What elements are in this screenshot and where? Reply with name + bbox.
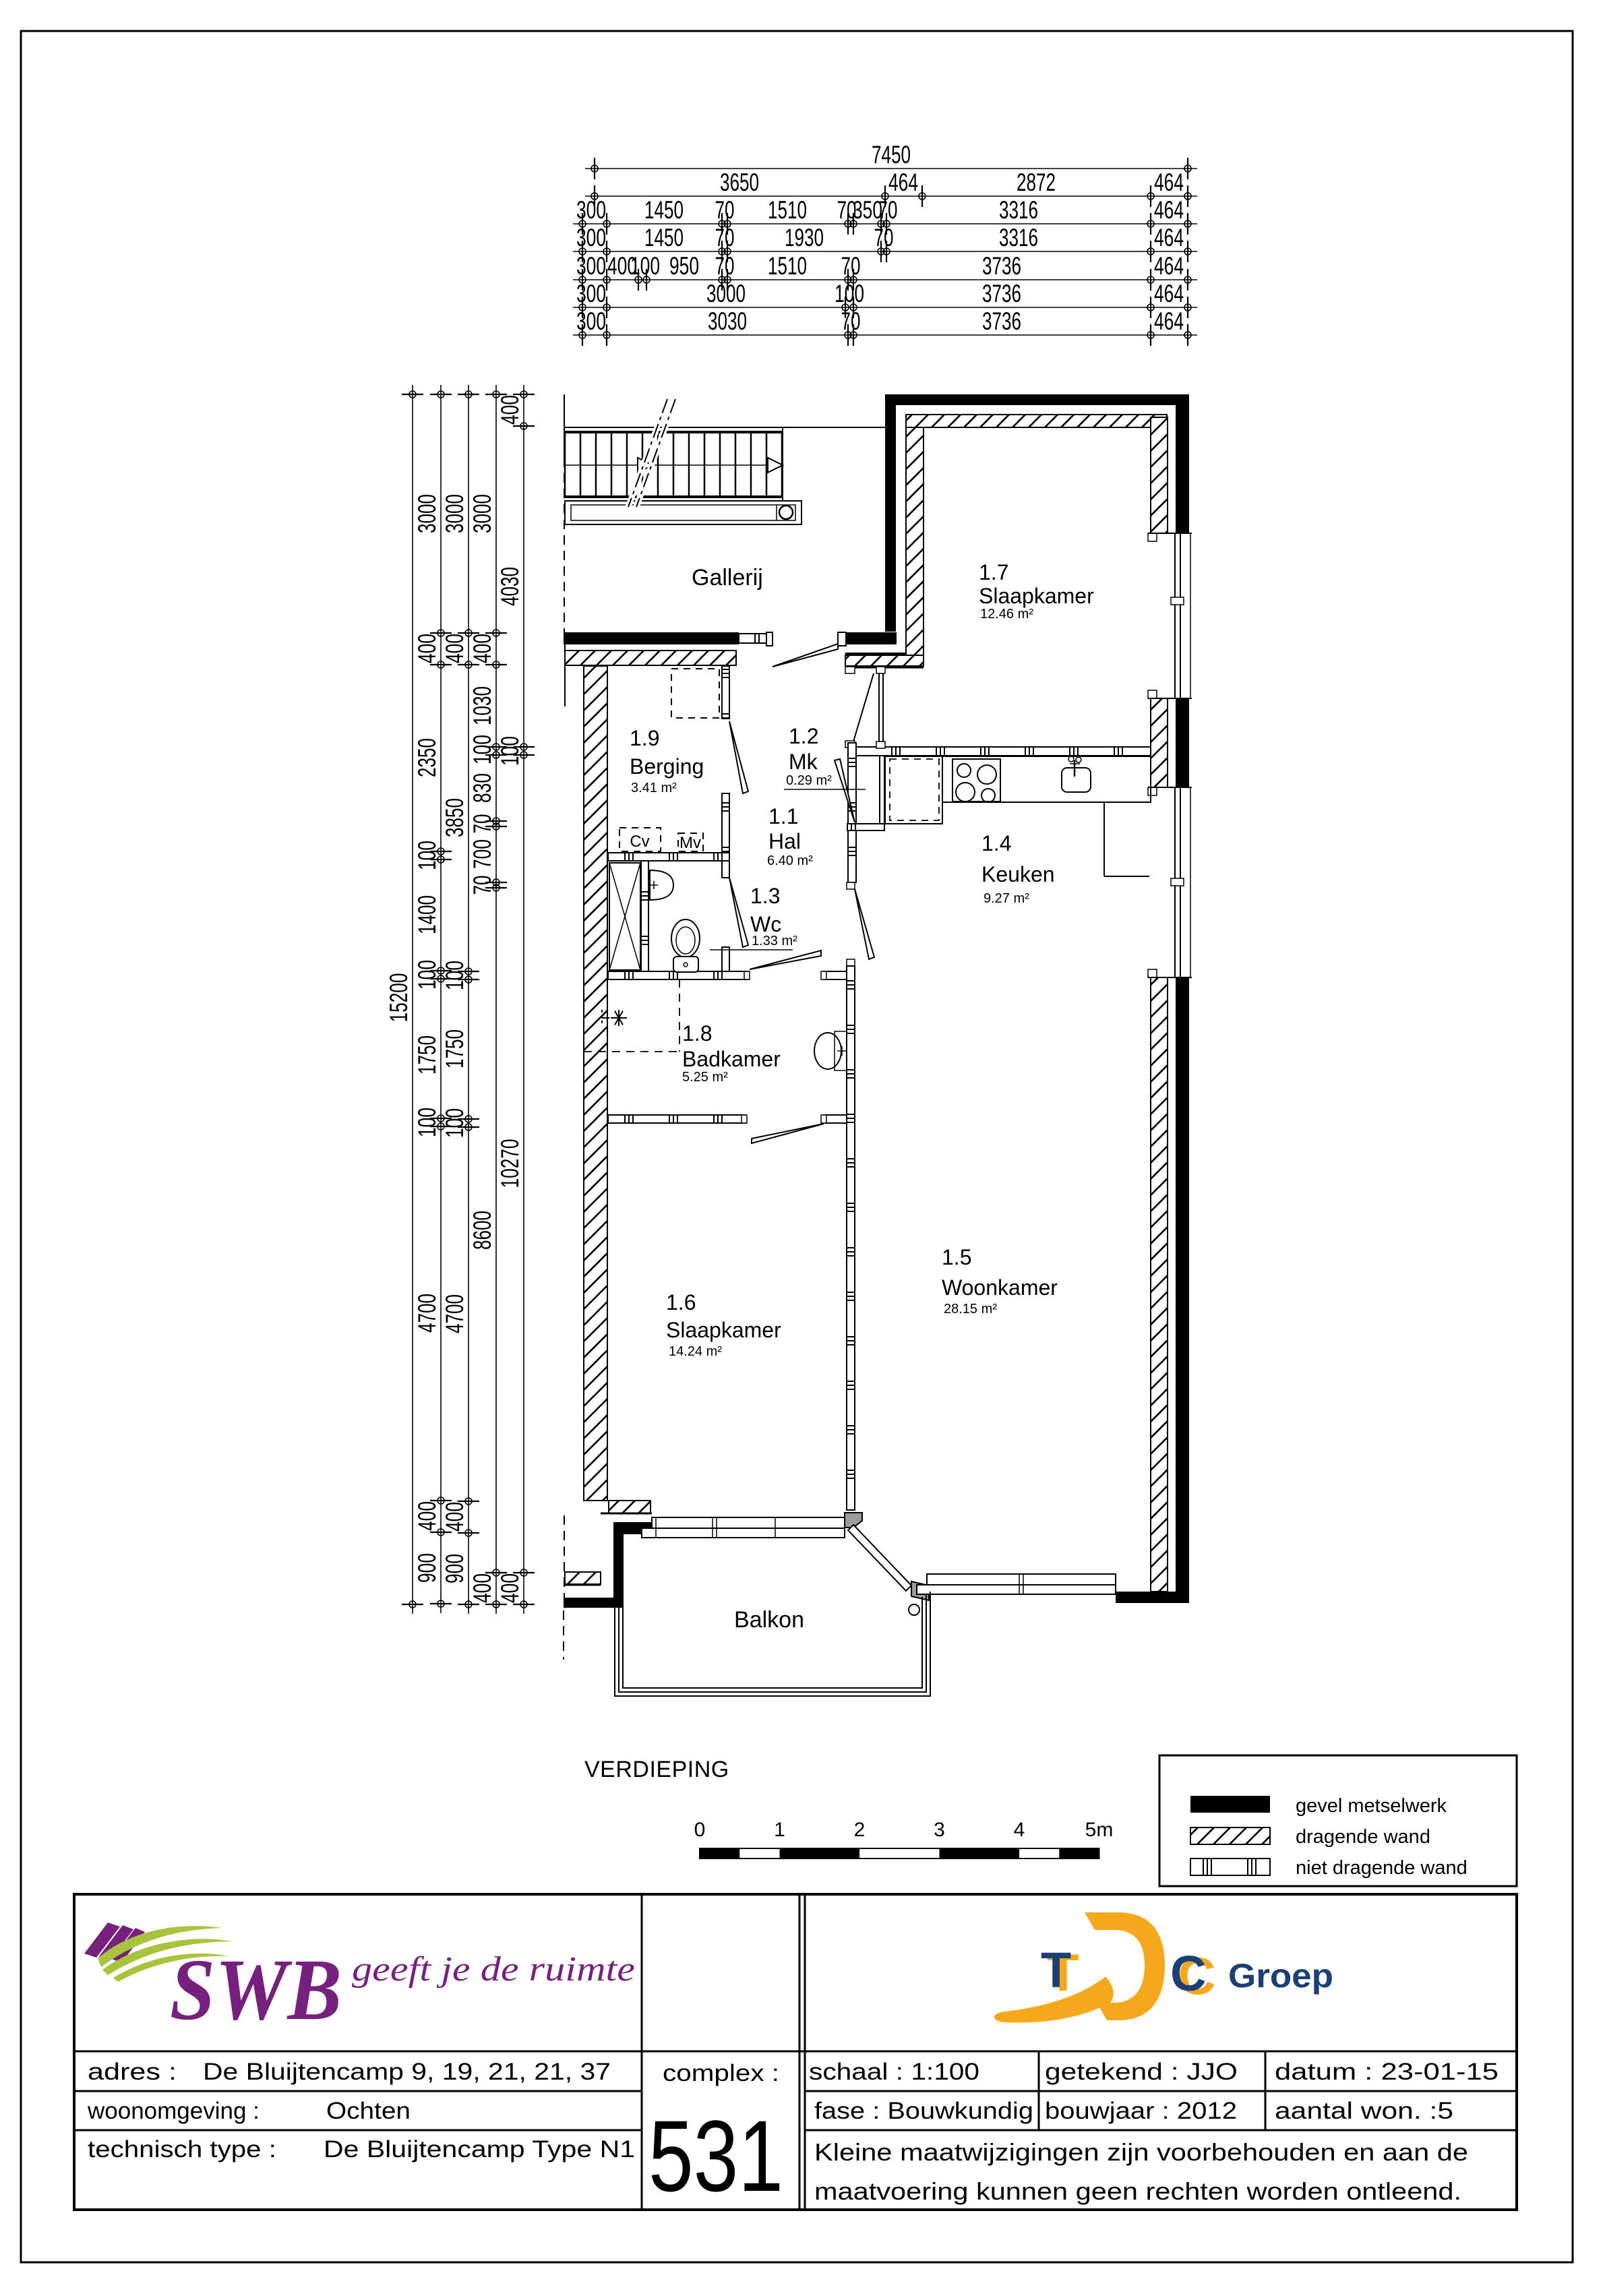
svg-text:fase : Bouwkundig: fase : Bouwkundig	[814, 2098, 1033, 2124]
svg-text:3736: 3736	[982, 252, 1021, 280]
svg-text:1.6: 1.6	[666, 1290, 696, 1315]
svg-text:100: 100	[413, 1108, 441, 1137]
svg-text:464: 464	[1154, 252, 1184, 280]
svg-text:300: 300	[576, 224, 606, 251]
svg-text:28.15 m²: 28.15 m²	[944, 1302, 997, 1317]
svg-text:6.40 m²: 6.40 m²	[767, 853, 813, 868]
svg-text:Berging: Berging	[630, 754, 704, 779]
svg-text:900: 900	[441, 1554, 468, 1583]
svg-text:3000: 3000	[441, 494, 468, 533]
svg-text:8600: 8600	[468, 1211, 496, 1250]
svg-text:3850: 3850	[441, 798, 468, 837]
svg-text:3.41 m²: 3.41 m²	[631, 781, 677, 795]
svg-text:niet dragende wand: niet dragende wand	[1296, 1857, 1468, 1879]
svg-text:complex :: complex :	[663, 2060, 779, 2086]
svg-text:464: 464	[1154, 280, 1184, 307]
svg-text:C: C	[1170, 1945, 1206, 2001]
svg-text:1.5: 1.5	[942, 1245, 971, 1269]
svg-text:Badkamer: Badkamer	[682, 1047, 781, 1071]
svg-text:datum : 23-01-15: datum : 23-01-15	[1275, 2059, 1499, 2085]
svg-text:100: 100	[630, 252, 660, 280]
svg-text:Slaapkamer: Slaapkamer	[666, 1318, 781, 1342]
svg-text:3030: 3030	[708, 307, 747, 335]
svg-text:3000: 3000	[706, 280, 746, 307]
svg-text:1750: 1750	[441, 1029, 468, 1068]
svg-text:1.2: 1.2	[789, 724, 818, 748]
svg-text:100: 100	[413, 841, 441, 870]
svg-text:2: 2	[854, 1819, 866, 1841]
svg-text:Balkon: Balkon	[734, 1607, 804, 1633]
svg-text:400: 400	[468, 634, 496, 663]
svg-text:Kleine maatwijzigingen zijn vo: Kleine maatwijzigingen zijn voorbehouden…	[814, 2138, 1468, 2166]
svg-text:Cv: Cv	[630, 833, 649, 851]
svg-text:9.27 m²: 9.27 m²	[984, 891, 1029, 906]
svg-text:7450: 7450	[872, 141, 911, 169]
svg-text:464: 464	[1154, 307, 1184, 335]
svg-text:SWB: SWB	[170, 1941, 342, 2038]
svg-text:464: 464	[1154, 196, 1184, 224]
svg-text:900: 900	[413, 1553, 441, 1583]
svg-text:adres :: adres :	[88, 2059, 177, 2085]
svg-text:bouwjaar : 2012: bouwjaar : 2012	[1045, 2098, 1237, 2124]
svg-text:300: 300	[576, 196, 606, 224]
svg-text:5.25 m²: 5.25 m²	[682, 1070, 728, 1085]
svg-text:De Bluijtencamp Type N1: De Bluijtencamp Type N1	[324, 2136, 635, 2163]
svg-text:70: 70	[878, 196, 898, 224]
svg-text:3736: 3736	[982, 280, 1021, 307]
svg-text:1930: 1930	[785, 224, 824, 251]
svg-text:1.7: 1.7	[979, 560, 1008, 584]
svg-text:70: 70	[715, 224, 735, 251]
svg-text:Groep: Groep	[1228, 1957, 1333, 1995]
svg-text:3736: 3736	[982, 307, 1021, 335]
svg-text:Ochten: Ochten	[326, 2098, 411, 2124]
svg-text:Keuken: Keuken	[981, 862, 1055, 886]
svg-text:100: 100	[441, 1108, 468, 1138]
svg-text:3650: 3650	[720, 169, 759, 196]
svg-text:70: 70	[715, 196, 735, 224]
svg-text:3: 3	[934, 1819, 945, 1841]
svg-text:3000: 3000	[468, 494, 496, 533]
svg-text:aantal won. :5: aantal won. :5	[1275, 2098, 1453, 2124]
svg-text:Slaapkamer: Slaapkamer	[979, 584, 1094, 608]
svg-text:100: 100	[468, 735, 496, 764]
svg-text:830: 830	[468, 773, 496, 803]
svg-text:Hal: Hal	[768, 829, 801, 853]
svg-text:400: 400	[413, 1501, 441, 1531]
svg-text:70: 70	[841, 252, 861, 280]
svg-text:0: 0	[694, 1819, 706, 1841]
svg-text:Gallerij: Gallerij	[692, 565, 763, 591]
svg-text:5m: 5m	[1085, 1819, 1114, 1841]
svg-text:De Bluijtencamp 9, 19, 21, 21,: De Bluijtencamp 9, 19, 21, 21, 37	[203, 2059, 611, 2085]
svg-text:3316: 3316	[999, 224, 1038, 251]
svg-text:1750: 1750	[413, 1035, 441, 1075]
svg-text:getekend : JJO: getekend : JJO	[1045, 2059, 1238, 2085]
svg-text:gevel metselwerk: gevel metselwerk	[1296, 1795, 1447, 1817]
svg-text:1.3: 1.3	[750, 884, 780, 908]
svg-text:300: 300	[576, 280, 606, 307]
svg-text:70: 70	[841, 307, 861, 335]
svg-text:70: 70	[468, 876, 496, 895]
svg-text:300: 300	[576, 307, 606, 335]
svg-text:VERDIEPING: VERDIEPING	[584, 1757, 729, 1782]
svg-text:531: 531	[648, 2099, 783, 2212]
svg-text:4: 4	[1014, 1819, 1025, 1841]
svg-text:70: 70	[715, 252, 735, 280]
svg-text:1.33 m²: 1.33 m²	[752, 934, 797, 948]
svg-text:70: 70	[468, 814, 496, 834]
svg-text:950: 950	[669, 252, 699, 280]
svg-text:1510: 1510	[768, 252, 807, 280]
svg-text:464: 464	[1154, 224, 1184, 251]
svg-text:1.8: 1.8	[682, 1021, 712, 1046]
svg-text:dragende wand: dragende wand	[1296, 1826, 1430, 1848]
svg-text:1450: 1450	[644, 224, 684, 251]
svg-text:geeft je de ruimte: geeft je de ruimte	[352, 1950, 635, 1989]
svg-text:Woonkamer: Woonkamer	[942, 1275, 1058, 1300]
svg-text:15200: 15200	[385, 973, 413, 1023]
svg-text:100: 100	[835, 280, 864, 307]
svg-text:70: 70	[874, 224, 894, 251]
svg-text:700: 700	[468, 839, 496, 869]
svg-text:10270: 10270	[496, 1139, 524, 1188]
svg-text:400: 400	[441, 1502, 468, 1532]
svg-text:3316: 3316	[999, 196, 1038, 224]
svg-text:14.24 m²: 14.24 m²	[669, 1344, 722, 1359]
svg-text:100: 100	[441, 961, 468, 990]
svg-text:2350: 2350	[413, 738, 441, 777]
svg-text:400: 400	[413, 634, 441, 663]
svg-text:T: T	[1041, 1942, 1071, 1998]
svg-text:464: 464	[1154, 169, 1184, 196]
svg-text:Mk: Mk	[789, 750, 818, 774]
svg-text:Mv: Mv	[679, 834, 701, 852]
svg-text:464: 464	[888, 169, 918, 196]
svg-text:1450: 1450	[644, 196, 684, 224]
svg-text:1.9: 1.9	[630, 726, 659, 750]
svg-text:0.29 m²: 0.29 m²	[786, 773, 832, 788]
svg-text:1: 1	[774, 1819, 785, 1841]
svg-text:Wc: Wc	[750, 912, 781, 936]
svg-text:100: 100	[413, 960, 441, 990]
svg-text:12.46 m²: 12.46 m²	[980, 607, 1033, 622]
svg-text:technisch type :: technisch type :	[88, 2136, 276, 2163]
svg-text:1.4: 1.4	[981, 831, 1011, 855]
svg-text:1.1: 1.1	[768, 804, 798, 828]
svg-text:400: 400	[496, 1573, 524, 1603]
svg-text:woonomgeving :: woonomgeving :	[87, 2098, 260, 2124]
svg-text:1030: 1030	[468, 686, 496, 725]
svg-text:100: 100	[496, 736, 524, 766]
svg-text:2872: 2872	[1017, 169, 1056, 196]
svg-text:4700: 4700	[413, 1294, 441, 1333]
svg-text:4030: 4030	[496, 567, 524, 606]
svg-text:1510: 1510	[768, 196, 807, 224]
svg-text:400: 400	[468, 1573, 496, 1603]
svg-text:400: 400	[441, 634, 468, 663]
svg-text:schaal : 1:100: schaal : 1:100	[809, 2059, 979, 2085]
svg-text:1400: 1400	[413, 895, 441, 934]
svg-text:maatvoering kunnen geen rechte: maatvoering kunnen geen rechten worden o…	[814, 2177, 1461, 2205]
svg-text:300: 300	[576, 252, 606, 280]
svg-text:4700: 4700	[441, 1294, 468, 1333]
svg-text:400: 400	[496, 395, 524, 425]
svg-text:3000: 3000	[413, 494, 441, 533]
